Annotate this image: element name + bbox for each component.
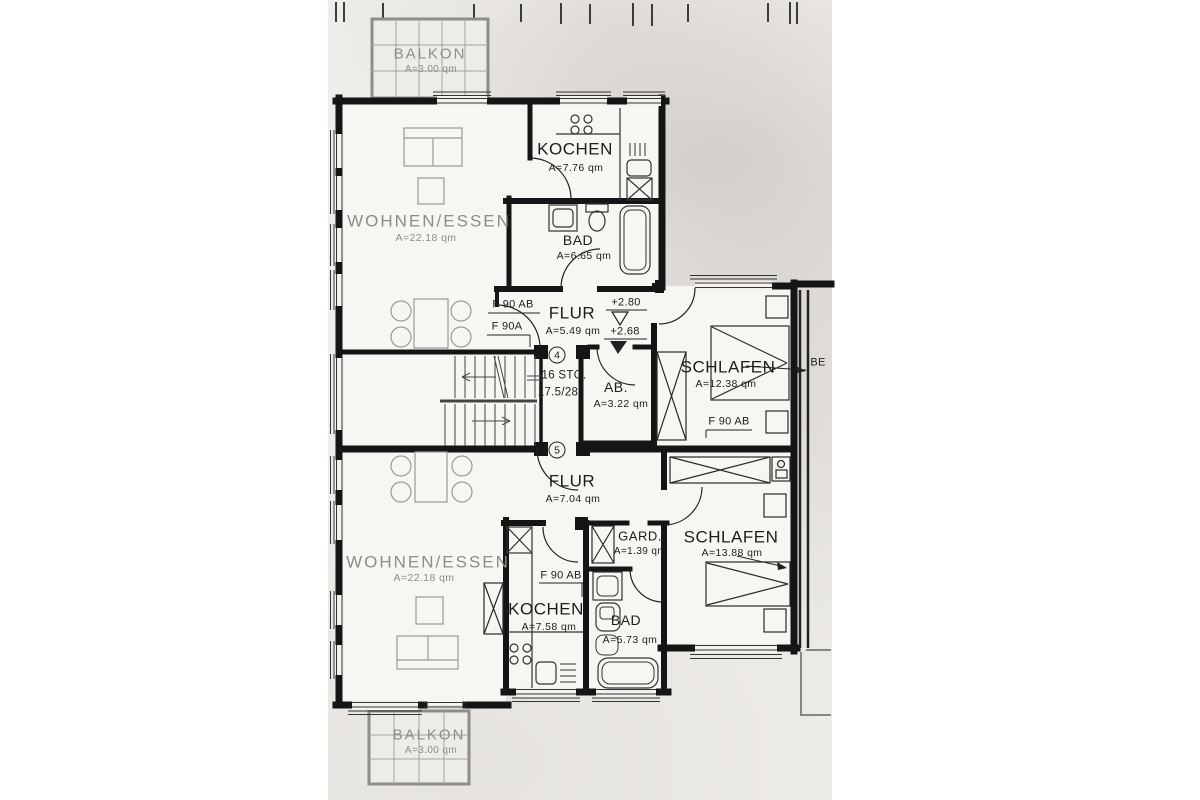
lower-schlafen-area: A=13.88 qm bbox=[702, 548, 763, 559]
upper-ab-area: A=3.22 qm bbox=[594, 399, 649, 410]
lower-wohnen-label: WOHNEN/ESSEN bbox=[346, 554, 510, 571]
upper-schlafen-label: SCHLAFEN bbox=[681, 359, 776, 376]
lower-balkon-label: BALKON bbox=[393, 728, 466, 743]
upper-ab-label: AB. bbox=[604, 380, 628, 394]
lower-kochen-door-label: F 90 AB bbox=[540, 571, 581, 582]
lower-gard-label: GARD. bbox=[618, 530, 662, 543]
fire-door-label-f90a: F 90A bbox=[492, 322, 523, 333]
stair-dim-label: 17.5/28 bbox=[538, 387, 578, 399]
lower-wohnen-area: A=22.18 qm bbox=[394, 573, 455, 584]
upper-kochen-area: A=7.76 qm bbox=[549, 163, 604, 174]
lower-flur-label: FLUR bbox=[549, 473, 595, 490]
stair-marker-5: 5 bbox=[549, 442, 566, 459]
upper-kochen-label: KOCHEN bbox=[537, 141, 613, 158]
lower-kochen-area: A=7.58 qm bbox=[522, 622, 577, 633]
level-lower: +2.68 bbox=[610, 327, 639, 338]
upper-schlafen-door-label: F 90 AB bbox=[708, 417, 749, 428]
upper-wohnen-label: WOHNEN/ESSEN bbox=[347, 213, 511, 230]
level-upper: +2.80 bbox=[611, 298, 640, 309]
lower-bad-label: BAD bbox=[611, 613, 641, 627]
upper-wohnen-area: A=22.18 qm bbox=[396, 233, 457, 244]
lower-flur-area: A=7.04 qm bbox=[546, 494, 601, 505]
lower-bad-area: A=5.73 qm bbox=[603, 635, 658, 646]
lower-kochen-label: KOCHEN bbox=[508, 601, 584, 618]
lower-schlafen-label: SCHLAFEN bbox=[684, 529, 779, 546]
neighbor-structure bbox=[800, 290, 831, 716]
upper-flur-label: FLUR bbox=[549, 305, 595, 322]
upper-bad-label: BAD bbox=[563, 233, 593, 247]
lower-gard-area: A=1.39 qm bbox=[614, 547, 666, 557]
floorplan-sheet: BALKON A=3.00 qm WOHNEN/ESSEN A=22.18 qm… bbox=[0, 0, 1200, 800]
stair-steps-label: 16 STG. bbox=[542, 370, 587, 382]
upper-bad-area: A=6.65 qm bbox=[557, 251, 612, 262]
fire-door-label-f90ab: F 90 AB bbox=[492, 300, 533, 311]
upper-balkon-area: A=3.00 qm bbox=[405, 65, 457, 75]
upper-flur-area: A=5.49 qm bbox=[546, 326, 601, 337]
upper-balkon-label: BALKON bbox=[394, 47, 467, 62]
cut-edge-label: BE bbox=[810, 358, 825, 369]
lower-balkon-area: A=3.00 qm bbox=[405, 746, 457, 756]
stair-marker-4: 4 bbox=[549, 347, 566, 364]
upper-schlafen-area: A=12.38 qm bbox=[696, 379, 757, 390]
